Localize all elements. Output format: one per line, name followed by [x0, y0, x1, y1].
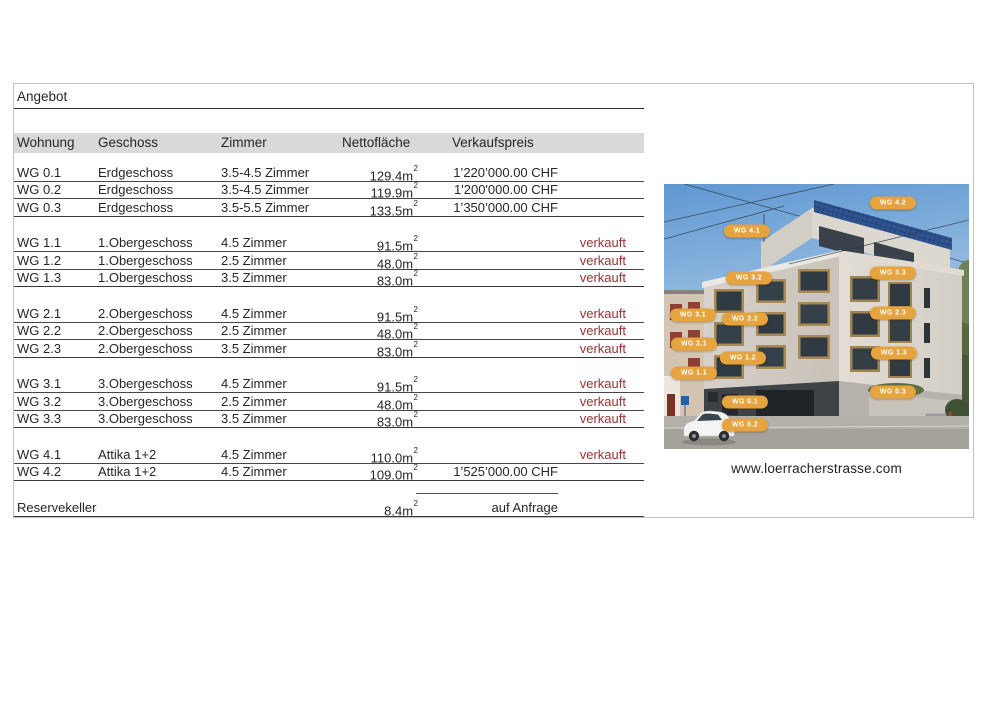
- status-cell: verkauft: [558, 377, 626, 391]
- area-cell: 91.5m2: [336, 236, 418, 253]
- area-cell: 48.0m2: [336, 254, 418, 271]
- unit-cell: WG 1.2: [17, 254, 97, 268]
- unit-cell: WG 4.1: [17, 448, 97, 462]
- rooms-cell: 2.5 Zimmer: [221, 395, 339, 409]
- apartment-label: WG 3.1: [670, 309, 716, 322]
- table-section: WG 1.11.Obergeschoss4.5 Zimmer91.5m2verk…: [14, 235, 644, 288]
- unit-cell: WG 3.1: [17, 377, 97, 391]
- area-superscript: 2: [414, 375, 418, 384]
- header-verkaufspreis: Verkaufspreis: [452, 136, 534, 150]
- status-cell: verkauft: [558, 342, 626, 356]
- apartment-label: WG 2.2: [722, 313, 768, 326]
- table-row: WG 1.11.Obergeschoss4.5 Zimmer91.5m2verk…: [14, 235, 644, 253]
- table-row: WG 1.31.Obergeschoss3.5 Zimmer83.0m2verk…: [14, 270, 644, 288]
- area-cell: 48.0m2: [336, 324, 418, 341]
- status-cell: verkauft: [558, 448, 626, 462]
- apartment-label: WG 4.2: [870, 197, 916, 210]
- floor-cell: 3.Obergeschoss: [98, 412, 216, 426]
- rooms-cell: 2.5 Zimmer: [221, 254, 339, 268]
- table-row: WG 3.33.Obergeschoss3.5 Zimmer83.0m2verk…: [14, 411, 644, 429]
- area-superscript: 2: [414, 305, 418, 314]
- area-cell: 8.4m2: [336, 501, 418, 518]
- apartment-label: WG 2.1: [671, 338, 717, 351]
- unit-cell: WG 2.3: [17, 342, 97, 356]
- floor-cell: 2.Obergeschoss: [98, 324, 216, 338]
- table-row: WG 0.3Erdgeschoss3.5-5.5 Zimmer133.5m21’…: [14, 199, 644, 217]
- table-row: WG 4.2Attika 1+24.5 Zimmer109.0m21’525’0…: [14, 464, 644, 482]
- status-cell: verkauft: [558, 395, 626, 409]
- area-cell: 91.5m2: [336, 307, 418, 324]
- unit-cell: WG 2.1: [17, 307, 97, 321]
- area-cell: 109.0m2: [336, 465, 418, 482]
- floor-cell: Erdgeschoss: [98, 201, 216, 215]
- rooms-cell: 3.5-5.5 Zimmer: [221, 201, 339, 215]
- price-cell-top-border: [416, 493, 558, 494]
- area-superscript: 2: [414, 446, 418, 455]
- floor-cell: 1.Obergeschoss: [98, 236, 216, 250]
- table-row: WG 0.2Erdgeschoss3.5-4.5 Zimmer119.9m21'…: [14, 182, 644, 200]
- unit-cell: Reservekeller: [17, 501, 97, 515]
- apartment-label: WG 3.3: [870, 267, 916, 280]
- area-cell: 83.0m2: [336, 412, 418, 429]
- apartment-label: WG 1.2: [720, 352, 766, 365]
- unit-cell: WG 1.1: [17, 236, 97, 250]
- unit-cell: WG 4.2: [17, 465, 97, 479]
- price-cell: 1’220’000.00 CHF: [426, 166, 558, 180]
- area-superscript: 2: [414, 199, 418, 208]
- apartment-label: WG 4.1: [724, 225, 770, 238]
- table-body: WG 0.1Erdgeschoss3.5-4.5 Zimmer129.4m21’…: [14, 164, 644, 517]
- area-cell: 129.4m2: [336, 166, 418, 183]
- status-cell: verkauft: [558, 236, 626, 250]
- area-cell: 83.0m2: [336, 342, 418, 359]
- rooms-cell: 4.5 Zimmer: [221, 236, 339, 250]
- area-value: 83.0m: [377, 344, 413, 359]
- status-cell: verkauft: [558, 412, 626, 426]
- rooms-cell: 4.5 Zimmer: [221, 307, 339, 321]
- rooms-cell: 3.5-4.5 Zimmer: [221, 183, 339, 197]
- unit-cell: WG 1.3: [17, 271, 97, 285]
- area-cell: 133.5m2: [336, 201, 418, 218]
- rooms-cell: 3.5 Zimmer: [221, 342, 339, 356]
- floor-cell: 1.Obergeschoss: [98, 271, 216, 285]
- area-superscript: 2: [414, 499, 418, 508]
- area-value: 109.0m: [370, 467, 413, 482]
- unit-cell: WG 0.2: [17, 183, 97, 197]
- area-cell: 83.0m2: [336, 271, 418, 288]
- area-superscript: 2: [414, 410, 418, 419]
- status-cell: verkauft: [558, 307, 626, 321]
- offer-table: Wohnung Geschoss Zimmer Nettofläche Verk…: [14, 133, 644, 535]
- rooms-cell: 4.5 Zimmer: [221, 377, 339, 391]
- floor-cell: 2.Obergeschoss: [98, 342, 216, 356]
- floor-cell: 1.Obergeschoss: [98, 254, 216, 268]
- area-superscript: 2: [414, 234, 418, 243]
- apartment-label: WG 3.2: [726, 272, 772, 285]
- status-cell: verkauft: [558, 271, 626, 285]
- apartment-label: WG 0.2: [722, 419, 768, 432]
- rooms-cell: 3.5-4.5 Zimmer: [221, 166, 339, 180]
- area-superscript: 2: [414, 322, 418, 331]
- rooms-cell: 4.5 Zimmer: [221, 448, 339, 462]
- unit-cell: WG 0.1: [17, 166, 97, 180]
- rooms-cell: 2.5 Zimmer: [221, 324, 339, 338]
- area-value: 83.0m: [377, 414, 413, 429]
- unit-cell: WG 0.3: [17, 201, 97, 215]
- header-nettoflaeche: Nettofläche: [342, 136, 410, 150]
- area-superscript: 2: [414, 164, 418, 173]
- table-row: WG 4.1Attika 1+24.5 Zimmer110.0m2verkauf…: [14, 446, 644, 464]
- apartment-label: WG 1.1: [671, 367, 717, 380]
- table-section: WG 3.13.Obergeschoss4.5 Zimmer91.5m2verk…: [14, 376, 644, 429]
- area-superscript: 2: [414, 269, 418, 278]
- area-superscript: 2: [414, 181, 418, 190]
- area-superscript: 2: [414, 393, 418, 402]
- page-title: Angebot: [17, 89, 67, 104]
- website-url: www.loerracherstrasse.com: [664, 461, 969, 476]
- table-row: WG 3.23.Obergeschoss2.5 Zimmer48.0m2verk…: [14, 393, 644, 411]
- floor-cell: 3.Obergeschoss: [98, 377, 216, 391]
- apartment-label: WG 0.1: [722, 396, 768, 409]
- unit-cell: WG 3.3: [17, 412, 97, 426]
- floor-cell: Erdgeschoss: [98, 183, 216, 197]
- table-row: WG 2.22.Obergeschoss2.5 Zimmer48.0m2verk…: [14, 323, 644, 341]
- area-value: 83.0m: [377, 273, 413, 288]
- document-page: Angebot Wohnung Geschoss Zimmer Nettoflä…: [0, 0, 1000, 707]
- apartment-label: WG 0.3: [870, 386, 916, 399]
- floor-cell: Attika 1+2: [98, 448, 216, 462]
- building-photo: WG 4.2WG 4.1WG 3.2WG 3.3WG 3.1WG 2.2WG 2…: [664, 184, 969, 449]
- table-row: WG 0.1Erdgeschoss3.5-4.5 Zimmer129.4m21’…: [14, 164, 644, 182]
- area-superscript: 2: [414, 463, 418, 472]
- apartment-label: WG 2.3: [870, 307, 916, 320]
- rooms-cell: 4.5 Zimmer: [221, 465, 339, 479]
- table-header-row: Wohnung Geschoss Zimmer Nettofläche Verk…: [14, 133, 644, 153]
- area-cell: 119.9m2: [336, 183, 418, 200]
- table-section: Reservekeller8.4m2auf Anfrage: [14, 499, 644, 517]
- area-value: 133.5m: [370, 203, 413, 218]
- header-wohnung: Wohnung: [17, 136, 75, 150]
- area-superscript: 2: [414, 252, 418, 261]
- rooms-cell: 3.5 Zimmer: [221, 412, 339, 426]
- rooms-cell: 3.5 Zimmer: [221, 271, 339, 285]
- table-section: WG 2.12.Obergeschoss4.5 Zimmer91.5m2verk…: [14, 305, 644, 358]
- unit-cell: WG 2.2: [17, 324, 97, 338]
- table-section: WG 4.1Attika 1+24.5 Zimmer110.0m2verkauf…: [14, 446, 644, 481]
- area-cell: 91.5m2: [336, 377, 418, 394]
- status-cell: verkauft: [558, 324, 626, 338]
- table-row: WG 2.32.Obergeschoss3.5 Zimmer83.0m2verk…: [14, 340, 644, 358]
- apartment-label: WG 1.3: [871, 347, 917, 360]
- floor-cell: Attika 1+2: [98, 465, 216, 479]
- area-cell: 110.0m2: [336, 448, 418, 465]
- floor-cell: Erdgeschoss: [98, 166, 216, 180]
- area-superscript: 2: [414, 340, 418, 349]
- area-value: 8.4m: [384, 503, 413, 518]
- table-row: WG 3.13.Obergeschoss4.5 Zimmer91.5m2verk…: [14, 376, 644, 394]
- floor-cell: 2.Obergeschoss: [98, 307, 216, 321]
- page-border: Angebot Wohnung Geschoss Zimmer Nettoflä…: [13, 83, 974, 518]
- price-cell: 1’350’000.00 CHF: [426, 201, 558, 215]
- price-cell: 1’525’000.00 CHF: [426, 465, 558, 479]
- title-underline: [14, 108, 644, 109]
- unit-cell: WG 3.2: [17, 395, 97, 409]
- area-cell: 48.0m2: [336, 395, 418, 412]
- table-row: Reservekeller8.4m2auf Anfrage: [14, 499, 644, 517]
- status-cell: verkauft: [558, 254, 626, 268]
- table-row: WG 2.12.Obergeschoss4.5 Zimmer91.5m2verk…: [14, 305, 644, 323]
- header-zimmer: Zimmer: [221, 136, 267, 150]
- header-geschoss: Geschoss: [98, 136, 158, 150]
- floor-cell: 3.Obergeschoss: [98, 395, 216, 409]
- table-row: WG 1.21.Obergeschoss2.5 Zimmer48.0m2verk…: [14, 252, 644, 270]
- table-section: WG 0.1Erdgeschoss3.5-4.5 Zimmer129.4m21’…: [14, 164, 644, 217]
- price-cell: 1'200'000.00 CHF: [426, 183, 558, 197]
- apartment-label-layer: WG 4.2WG 4.1WG 3.2WG 3.3WG 3.1WG 2.2WG 2…: [664, 184, 969, 449]
- price-cell: auf Anfrage: [426, 501, 558, 515]
